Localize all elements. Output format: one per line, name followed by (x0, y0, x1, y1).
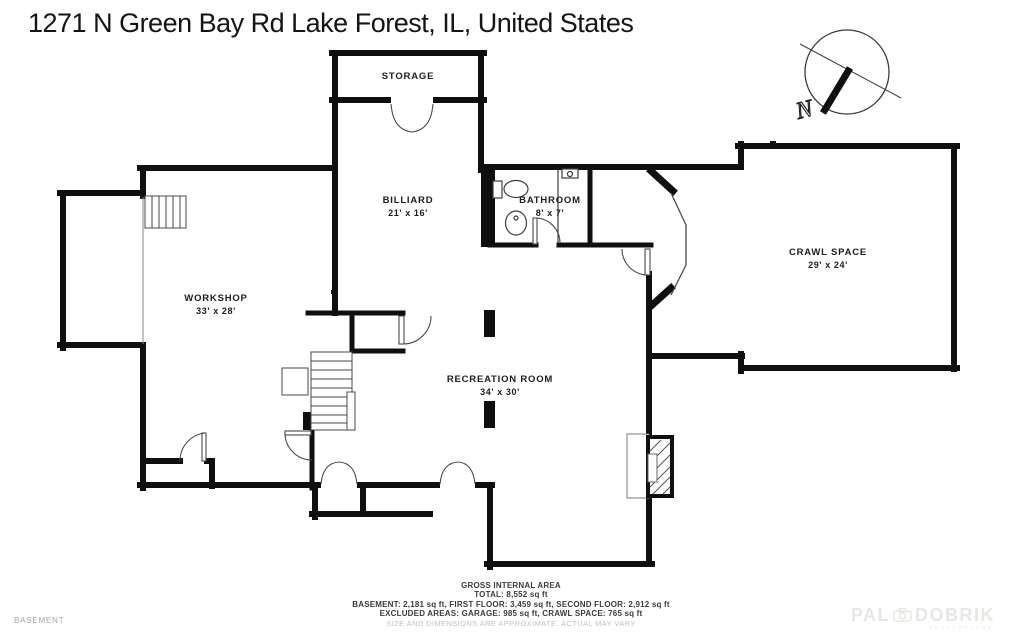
wall-bay-jambs (651, 171, 673, 306)
summary-excluded: EXCLUDED AREAS: GARAGE: 985 sq ft, CRAWL… (352, 609, 670, 618)
compass: N (792, 30, 901, 125)
pillar-top (484, 310, 495, 337)
doors (180, 104, 650, 484)
door-stair-closet (399, 316, 431, 344)
compass-north-label: N (792, 95, 817, 125)
door-workshop (180, 433, 206, 461)
wall-billiard (335, 100, 481, 313)
wall-porch (312, 485, 430, 517)
summary-heading: GROSS INTERNAL AREA (352, 581, 670, 590)
sink-icon (506, 211, 527, 235)
room-label-crawl-space: CRAWL SPACE (789, 247, 867, 258)
room-dims-bathroom: 8' x 7' (536, 208, 565, 218)
fireplace (627, 434, 672, 498)
watermark-brand: PAL DOBRIK (851, 606, 995, 624)
watermark-tagline: PHOTOGRAPHY (851, 625, 995, 630)
stairs-workshop (145, 196, 186, 228)
stairs-recreation (282, 352, 355, 430)
walls (60, 53, 957, 567)
wall-workshop (60, 168, 143, 488)
fireplace-notch (648, 454, 657, 482)
watermark-brand-right: DOBRIK (915, 606, 995, 624)
floor-label: BASEMENT (14, 616, 64, 625)
room-label-bathroom: BATHROOM (519, 195, 581, 206)
watermark: PAL DOBRIK PHOTOGRAPHY (851, 606, 995, 630)
camera-icon (893, 608, 912, 622)
area-summary: GROSS INTERNAL AREA TOTAL: 8,552 sq ft B… (352, 581, 670, 628)
floorplan-page: 1271 N Green Bay Rd Lake Forest, IL, Uni… (0, 0, 1023, 639)
door-porch-double (321, 462, 357, 484)
stair-landing (282, 368, 308, 395)
bay-window-line (671, 193, 686, 295)
summary-floors: BASEMENT: 2,181 sq ft, FIRST FLOOR: 3,45… (352, 600, 670, 609)
room-label-storage: STORAGE (382, 71, 434, 82)
pillar-bottom (484, 401, 495, 428)
door-rec-south-double (440, 462, 475, 484)
room-label-recreation: RECREATION ROOM (447, 374, 553, 385)
room-dims-billiard: 21' x 16' (388, 208, 428, 218)
room-label-workshop: WORKSHOP (184, 293, 247, 304)
room-dims-crawl-space: 29' x 24' (808, 260, 848, 270)
door-rec-lower (285, 431, 312, 460)
stair-railing (347, 392, 355, 430)
watermark-brand-left: PAL (851, 606, 890, 624)
room-label-billiard: BILLIARD (383, 195, 434, 206)
compass-needle (823, 68, 850, 113)
door-storage-double (391, 104, 433, 132)
summary-disclaimer: SIZE AND DIMENSIONS ARE APPROXIMATE. ACT… (352, 619, 670, 628)
door-rec-right (622, 249, 650, 275)
summary-total: TOTAL: 8,552 sq ft (352, 590, 670, 599)
room-dims-recreation: 34' x 30' (480, 387, 520, 397)
wall-block-bathroom (481, 167, 495, 247)
wall-sink-icon (562, 169, 578, 178)
door-bathroom (533, 218, 560, 244)
fireplace-hearth (627, 434, 649, 498)
floorplan-svg: N STORAGE BILLIARD 21' x 16' BATHROOM 8'… (0, 0, 1023, 639)
room-dims-workshop: 33' x 28' (196, 306, 236, 316)
